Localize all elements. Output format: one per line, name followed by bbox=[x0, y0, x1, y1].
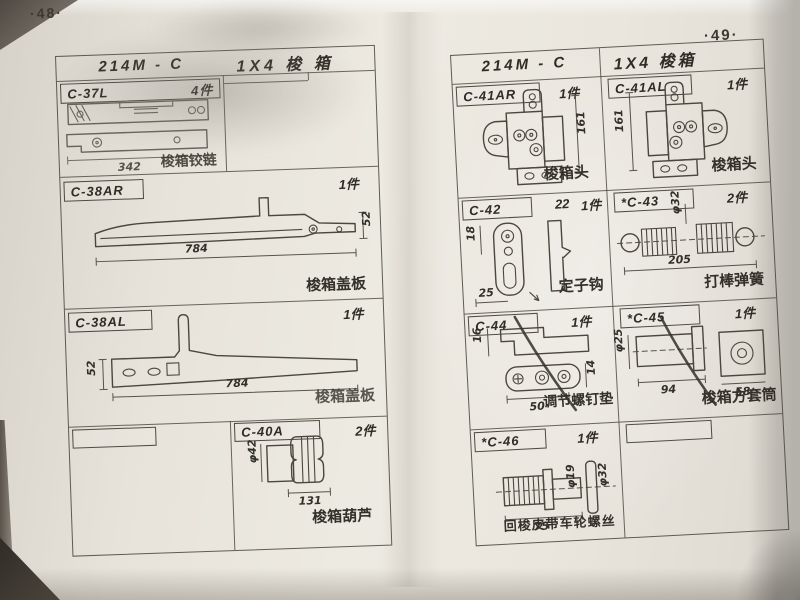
page-fold-shadow bbox=[382, 12, 442, 587]
c38ar-dim-height: 52 bbox=[360, 210, 374, 226]
empty-label-box bbox=[72, 427, 157, 449]
c38al-part-drawing: 52 784 bbox=[65, 298, 387, 427]
scanned-catalog-photo: ·48· ·49· 214M - C 1X4 梭 箱 C-37L 4件 342 bbox=[0, 0, 800, 600]
c38al-part-name: 梭箱盖板 bbox=[303, 384, 388, 408]
c40a-part-drawing: φ42 131 bbox=[230, 416, 391, 550]
c38ar-part-name: 梭箱盖板 bbox=[294, 272, 379, 296]
c37-dim-length: 342 bbox=[118, 160, 142, 174]
photo-corner-bottomleft bbox=[0, 520, 60, 600]
photo-left-edge bbox=[0, 420, 15, 600]
left-header-model: 214M - C bbox=[98, 56, 184, 76]
photo-bottom-shadow bbox=[0, 568, 800, 600]
c38al-dim-height: 52 bbox=[85, 360, 99, 376]
right-page-table: 214M - C 1X4 梭箱 C-41AR 1件 161 梭箱头 C-41AL bbox=[450, 39, 789, 547]
c37-part-name: 梭箱铰链 bbox=[155, 149, 222, 171]
page-number-left: ·48· bbox=[30, 4, 63, 21]
c38al-dim-length: 784 bbox=[225, 376, 248, 390]
c40a-part-name: 梭箱葫芦 bbox=[297, 504, 388, 528]
photo-top-edge bbox=[0, 0, 800, 16]
pen-marks-overlay bbox=[451, 40, 788, 546]
left-page-table: 214M - C 1X4 梭 箱 C-37L 4件 342 梭箱铰链 C-38A… bbox=[55, 45, 392, 557]
c40a-dim-dia: φ42 bbox=[245, 439, 259, 464]
c38ar-dim-length: 784 bbox=[185, 242, 208, 256]
photo-corner-bottomright bbox=[735, 528, 800, 600]
